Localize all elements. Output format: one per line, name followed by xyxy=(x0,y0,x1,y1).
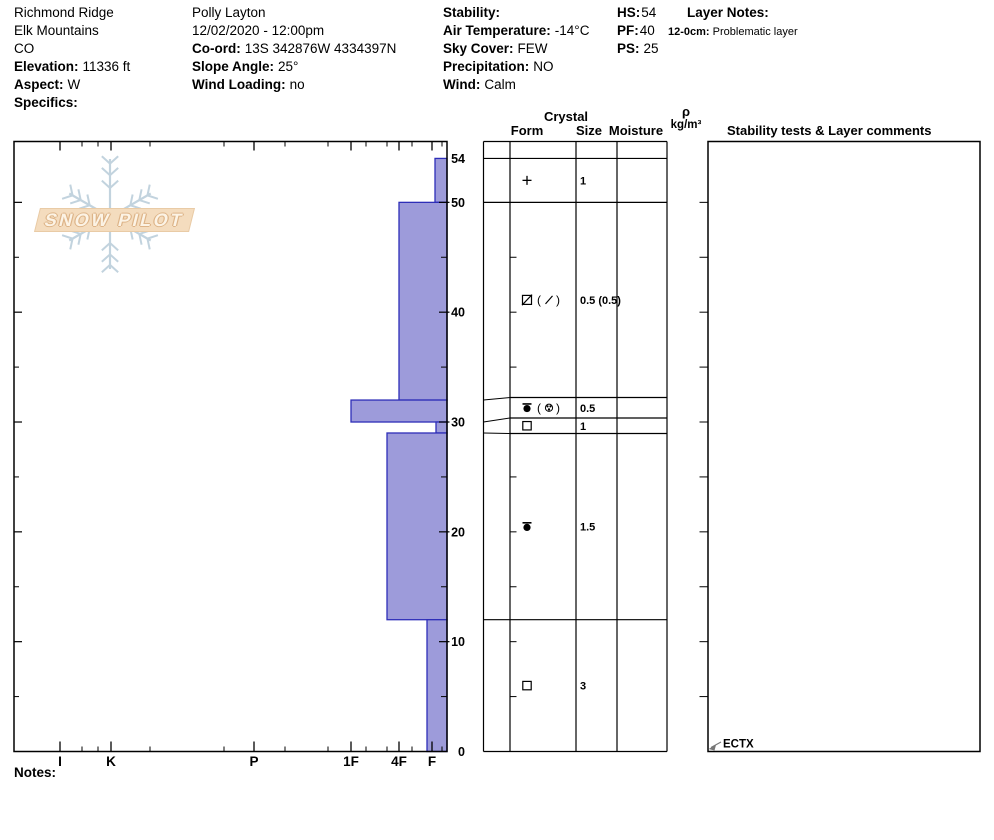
snowflake-icon xyxy=(110,168,118,175)
snowflake-icon xyxy=(102,254,110,261)
snowflake-icon xyxy=(110,243,118,250)
hardness-axis-label: P xyxy=(249,754,258,769)
precipitation-label: Precipitation: xyxy=(443,59,529,74)
snowflake-icon xyxy=(102,156,110,163)
grain-size-value: 1 xyxy=(580,421,586,433)
hardness-axis-label: I xyxy=(58,754,62,769)
hardness-bar-layer-1 xyxy=(435,158,447,202)
hs-value: 54 xyxy=(641,5,656,20)
notes-label: Notes: xyxy=(14,765,56,780)
depth-axis-label: 0 xyxy=(458,745,465,759)
snowflake-icon xyxy=(110,181,118,188)
air-temp-line: Air Temperature:-14°C xyxy=(443,22,589,40)
layer-connector-line xyxy=(484,418,511,422)
sky-cover-label: Sky Cover: xyxy=(443,41,514,56)
hardness-bar-layer-4 xyxy=(436,422,447,433)
snowflake-icon xyxy=(147,195,157,198)
snowflake-icon xyxy=(147,235,157,238)
moisture-header: Moisture xyxy=(609,123,663,138)
stability-line: Stability: xyxy=(443,4,589,22)
hardness-bar-layer-3 xyxy=(351,400,447,422)
location-block: Richmond Ridge Elk Mountains CO Elevatio… xyxy=(14,4,130,112)
layer-notes-title: Layer Notes: xyxy=(687,4,769,22)
coord-line: Co-ord:13S 342876W 4334397N xyxy=(192,40,396,58)
depth-axis-label: 10 xyxy=(451,635,465,649)
snowflake-icon xyxy=(102,181,110,188)
crystal-fc-icon xyxy=(523,681,531,689)
stability-test-arrowhead xyxy=(709,745,717,751)
snowflake-icon xyxy=(110,254,118,261)
crystal-paren: ( xyxy=(537,401,541,415)
aspect-value: W xyxy=(68,77,81,92)
crystal-rgmx-icon xyxy=(546,405,548,407)
stability-test-arrow xyxy=(711,742,721,748)
crystal-rg-icon xyxy=(523,405,530,412)
sky-cover-line: Sky Cover:FEW xyxy=(443,40,589,58)
wind-value: Calm xyxy=(484,77,516,92)
snowpilot-logo: SNOW PILOT xyxy=(34,208,195,232)
grain-size-value: 1 xyxy=(580,175,586,187)
slope-angle-line: Slope Angle:25° xyxy=(192,58,396,76)
form-header: Form xyxy=(511,123,544,138)
hardness-axis-label: 4F xyxy=(391,754,407,769)
crystal-fc-icon xyxy=(523,422,531,430)
pf-label: PF: xyxy=(617,23,639,38)
snowflake-icon xyxy=(62,195,72,198)
stability-tests-header: Stability tests & Layer comments xyxy=(727,123,931,138)
snowflake-icon xyxy=(102,243,110,250)
conditions-block: Stability: Air Temperature:-14°C Sky Cov… xyxy=(443,4,589,94)
snowflake-icon xyxy=(102,265,110,272)
snowflake-icon xyxy=(62,235,72,238)
crystal-rgmx-icon xyxy=(548,408,550,410)
crystal-header: Crystal xyxy=(544,109,588,124)
snowpack-block: HS:54 PF:40 PS:25 xyxy=(617,4,659,58)
mountain-range: Elk Mountains xyxy=(14,22,130,40)
layer-connector-line xyxy=(484,433,511,434)
aspect-line: Aspect:W xyxy=(14,76,130,94)
hardness-bar-layer-6 xyxy=(427,620,447,752)
depth-axis-label: 54 xyxy=(451,152,465,166)
elevation-line: Elevation:11336 ft xyxy=(14,58,130,76)
hardness-bar-layer-2 xyxy=(399,202,447,400)
depth-axis-label: 30 xyxy=(451,416,465,430)
specifics-label: Specifics: xyxy=(14,95,78,110)
snowflake-icon xyxy=(139,200,149,203)
snowflake-icon xyxy=(70,200,80,203)
density-units-header: kg/m³ xyxy=(671,119,702,131)
snowflake-icon xyxy=(110,265,118,272)
site-name: Richmond Ridge xyxy=(14,4,130,22)
pf-value: 40 xyxy=(640,23,655,38)
hs-label: HS: xyxy=(617,5,640,20)
wind-label: Wind: xyxy=(443,77,480,92)
hs-line: HS:54 xyxy=(617,4,659,22)
sky-cover-value: FEW xyxy=(518,41,548,56)
hardness-axis-label: K xyxy=(106,754,116,769)
crystal-pp-partial-icon xyxy=(546,296,553,304)
stability-comments-box xyxy=(708,142,980,752)
crystal-df-icon xyxy=(522,295,532,306)
depth-axis-label: 40 xyxy=(451,306,465,320)
coord-value: 13S 342876W 4334397N xyxy=(245,41,397,56)
coord-label: Co-ord: xyxy=(192,41,241,56)
specifics-line: Specifics: xyxy=(14,94,130,112)
snowflake-icon xyxy=(102,168,110,175)
layer-connector-line xyxy=(484,398,511,401)
crystal-paren: ) xyxy=(556,293,560,307)
crystal-rg-icon xyxy=(523,524,530,531)
wind-loading-value: no xyxy=(290,77,305,92)
wind-line: Wind:Calm xyxy=(443,76,589,94)
density-rho-header: ρ xyxy=(682,104,690,119)
ps-value: 25 xyxy=(644,41,659,56)
snowflake-icon xyxy=(110,156,118,163)
depth-axis-label: 50 xyxy=(451,196,465,210)
size-header: Size xyxy=(576,123,602,138)
precipitation-line: Precipitation:NO xyxy=(443,58,589,76)
wind-loading-line: Wind Loading:no xyxy=(192,76,396,94)
layer-note-text: Problematic layer xyxy=(713,26,798,38)
hardness-axis-label: 1F xyxy=(343,754,359,769)
grain-size-value: 1.5 xyxy=(580,522,595,534)
ps-line: PS:25 xyxy=(617,40,659,58)
air-temp-value: -14°C xyxy=(555,23,590,38)
slope-angle-value: 25° xyxy=(278,59,298,74)
elevation-value: 11336 ft xyxy=(83,59,131,74)
pit-datetime: 12/02/2020 - 12:00pm xyxy=(192,22,396,40)
wind-loading-label: Wind Loading: xyxy=(192,77,286,92)
grain-size-value: 0.5 (0.5) xyxy=(580,295,621,307)
hardness-bar-layer-5 xyxy=(387,433,447,620)
crystal-rgmx-icon xyxy=(549,405,551,407)
crystal-paren: ( xyxy=(537,293,541,307)
layer-note-item: 12-0cm: Problematic layer xyxy=(668,25,798,39)
snowpilot-logo-text: SNOW PILOT xyxy=(42,210,186,231)
pf-line: PF:40 xyxy=(617,22,659,40)
stability-label: Stability: xyxy=(443,5,500,20)
elevation-label: Elevation: xyxy=(14,59,79,74)
ps-label: PS: xyxy=(617,41,640,56)
slope-angle-label: Slope Angle: xyxy=(192,59,274,74)
crystal-paren: ) xyxy=(556,401,560,415)
depth-axis-label: 20 xyxy=(451,525,465,539)
stability-test-result: ECTX xyxy=(723,739,754,751)
hardness-axis-label: F xyxy=(428,754,436,769)
aspect-label: Aspect: xyxy=(14,77,64,92)
layer-note-range: 12-0cm: xyxy=(668,26,710,38)
air-temp-label: Air Temperature: xyxy=(443,23,551,38)
grain-size-value: 0.5 xyxy=(580,403,595,415)
grain-size-value: 3 xyxy=(580,681,586,693)
state: CO xyxy=(14,40,130,58)
precipitation-value: NO xyxy=(533,59,553,74)
observer-name: Polly Layton xyxy=(192,4,396,22)
observer-block: Polly Layton 12/02/2020 - 12:00pm Co-ord… xyxy=(192,4,396,94)
